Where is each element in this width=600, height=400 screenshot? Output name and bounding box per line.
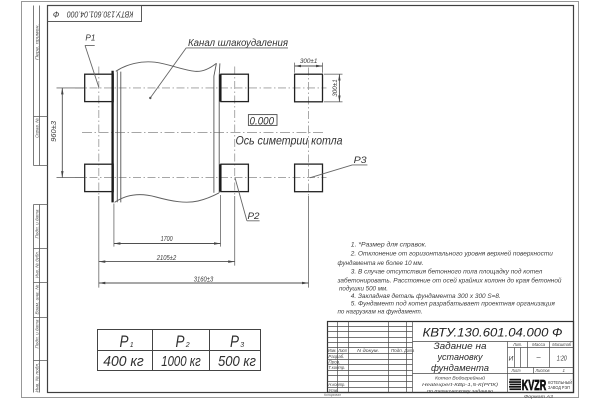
svg-text:P3: P3 [354,155,367,165]
svg-text:КВТУ.130.601.04.000 Ф: КВТУ.130.601.04.000 Ф [423,327,563,339]
svg-text:Масштаб: Масштаб [552,342,571,347]
svg-text:Задание на: Задание на [434,341,487,351]
svg-text:400 кг: 400 кг [103,353,144,370]
svg-text:Утв.: Утв. [328,388,338,393]
svg-text:KVZR: KVZR [522,377,547,394]
svg-text:Изм.: Изм. [328,348,337,353]
svg-text:1. *Размер для справок.: 1. *Размер для справок. [351,241,427,249]
svg-text:1700: 1700 [161,236,173,243]
svg-text:Пров.: Пров. [328,359,340,364]
svg-text:забетонировать. Расстояние от: забетонировать. Расстояние от осей крайн… [337,277,562,285]
svg-text:0.000: 0.000 [250,116,275,128]
svg-text:1: 1 [130,342,134,349]
svg-text:P1: P1 [85,33,95,43]
svg-text:КВТУ.130.601.04.000: КВТУ.130.601.04.000 [66,9,133,18]
svg-text:Инв. № подл.: Инв. № подл. [35,363,40,393]
svg-text:P: P [230,333,239,351]
svg-text:Heatexpert-КВр-1,5-К(РПК): Heatexpert-КВр-1,5-К(РПК) [422,382,499,387]
svg-text:Разраб.: Разраб. [328,354,344,359]
svg-text:500 кг: 500 кг [218,353,257,370]
svg-text:по нагрузкам на фундамент.: по нагрузкам на фундамент. [338,307,423,315]
svg-text:300±1: 300±1 [332,79,339,97]
svg-text:–: – [536,352,542,361]
svg-text:2: 2 [185,342,190,349]
svg-text:И: И [509,355,514,362]
svg-text:Н.контр.: Н.контр. [328,382,345,387]
svg-text:Инв. № дубл.: Инв. № дубл. [35,251,40,278]
svg-text:КОТЕЛЬНЫЙ: КОТЕЛЬНЫЙ [548,380,572,385]
svg-text:Листов: Листов [535,368,550,373]
svg-text:Ось симетрии котла: Ось симетрии котла [236,134,343,148]
svg-text:4. Закладная деталь фундамента: 4. Закладная деталь фундамента 300 х 300… [351,292,501,300]
svg-text:фундамента: фундамента [431,363,489,373]
svg-text:Подп.: Подп. [391,348,403,353]
svg-text:Ф: Ф [52,9,59,18]
svg-text:P: P [120,333,129,351]
svg-text:N докум.: N докум. [357,348,379,353]
svg-text:Лист: Лист [511,368,521,373]
svg-text:Дата: Дата [403,348,414,353]
svg-text:Взам. инв. №: Взам. инв. № [35,284,40,314]
svg-text:Лист: Лист [337,348,347,353]
svg-text:фундамента не более 10 мм.: фундамента не более 10 мм. [338,259,424,267]
svg-text:3160±3: 3160±3 [194,277,214,284]
svg-text:Т.контр.: Т.контр. [328,365,345,370]
svg-text:1000 кг: 1000 кг [161,353,201,370]
svg-text:ЗАВОД РЭП: ЗАВОД РЭП [548,385,570,390]
svg-text:Котел Водогрейный: Котел Водогрейный [435,375,485,381]
svg-text:Подп. и дата: Подп. и дата [35,319,40,349]
svg-text:Масса: Масса [532,342,546,347]
svg-text:2. Отклонение от горизонтально: 2. Отклонение от горизонтального уровня … [350,250,553,258]
svg-text:Перв. примен.: Перв. примен. [35,24,40,60]
svg-text:5. Фундамент под котел разраба: 5. Фундамент под котел разрабатывает про… [351,300,555,308]
svg-text:Лит.: Лит. [512,342,522,347]
svg-text:Формат А3: Формат А3 [524,394,554,399]
svg-text:300±1: 300±1 [300,58,318,65]
svg-text:Подп. и дата: Подп. и дата [35,209,40,239]
svg-text:подушки 500 мм.: подушки 500 мм. [339,284,388,292]
svg-text:P2: P2 [248,211,260,221]
svg-text:2105±2: 2105±2 [156,255,176,262]
svg-text:Копировал: Копировал [324,393,341,397]
svg-text:3: 3 [240,342,244,349]
svg-text:Канал шлакоудаления: Канал шлакоудаления [188,38,289,49]
svg-text:P: P [176,333,185,351]
svg-text:1:20: 1:20 [557,354,567,363]
svg-text:3. В случае отсутствия бетонно: 3. В случае отсутствия бетонного пола пл… [351,268,543,276]
svg-text:установку: установку [437,352,484,362]
svg-text:по техническому заданию: по техническому заданию [427,388,494,393]
svg-text:Справ. №: Справ. № [35,118,40,138]
svg-text:960±3: 960±3 [51,121,58,142]
